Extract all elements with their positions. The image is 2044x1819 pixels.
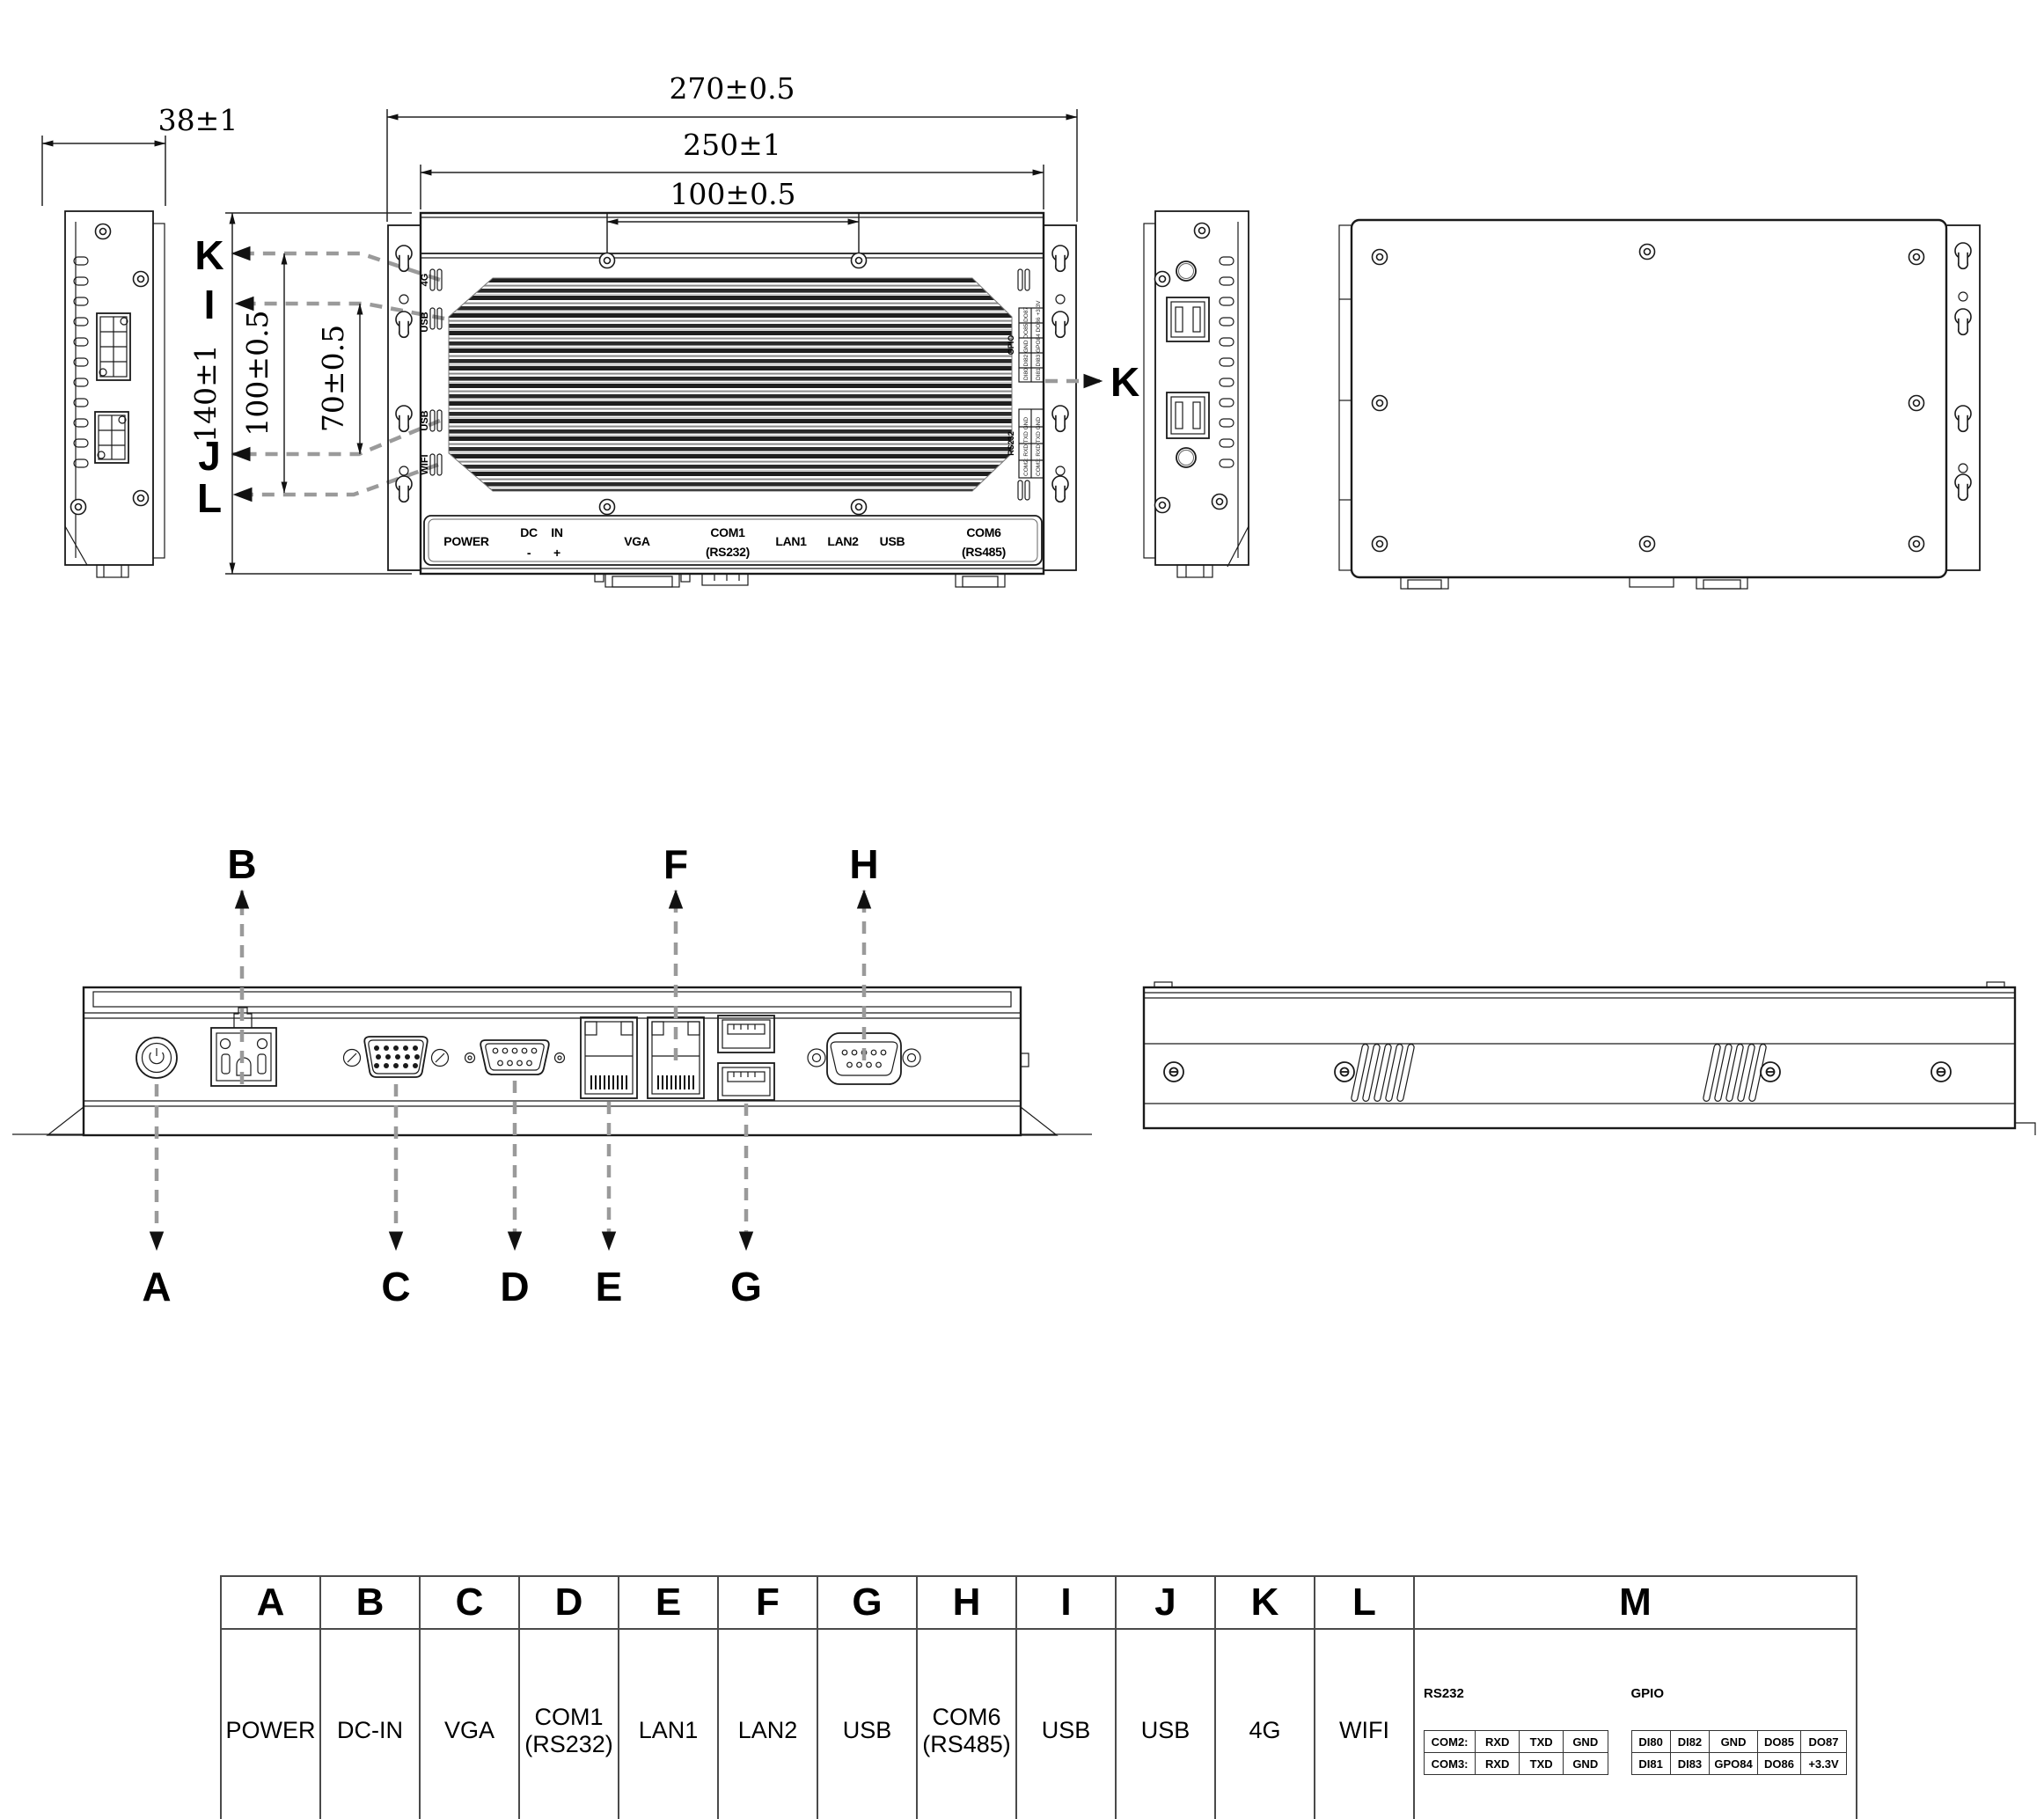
antenna-hole-icon	[1176, 261, 1196, 281]
dim-250-label: 250±1	[683, 128, 781, 162]
front-callouts: B F H A C D E G	[142, 841, 878, 1309]
legend-header: B	[320, 1576, 420, 1629]
usb-connector-side-2	[1167, 392, 1209, 438]
screw-icon	[1335, 1062, 1354, 1082]
mount-foot-left	[48, 1107, 84, 1135]
legend-cell: 4G	[1215, 1629, 1315, 1819]
svg-text:DI81 DI83 GPO84 DO86 +3.3V: DI81 DI83 GPO84 DO86 +3.3V	[1036, 300, 1042, 380]
dim-hole-spacing-inner: 70±0.5	[316, 304, 360, 454]
callout-letter-c: C	[381, 1264, 410, 1309]
side-label-usb2: USB	[420, 410, 430, 430]
dim-side-width: 38±1	[42, 103, 238, 206]
screw-icon	[1373, 537, 1388, 552]
heatsink-fins	[449, 278, 1012, 491]
mount-foot-right	[1021, 1107, 1057, 1135]
dim-100-left-label: 100±0.5	[240, 310, 275, 436]
screw-icon	[1164, 1062, 1183, 1082]
screw-icon	[134, 491, 149, 506]
svg-text:GPIO: GPIO	[1007, 335, 1015, 356]
svg-text:DI80 DI82 GND DO85 DO87: DI80 DI82 GND DO85 DO87	[1023, 307, 1029, 380]
legend-cell: DC-IN	[320, 1629, 420, 1819]
legend-header: F	[718, 1576, 817, 1629]
legend-cell: LAN1	[619, 1629, 718, 1819]
front-view: B F H A C D E G	[12, 841, 1092, 1309]
power-button	[136, 1038, 177, 1078]
callout-letter-k: K	[194, 232, 223, 278]
legend-header-m: M	[1414, 1576, 1857, 1629]
rs232-pinout-table: COM2: RXD TXD GND COM3: RXD TXD GND	[1424, 1730, 1608, 1775]
legend-header: E	[619, 1576, 718, 1629]
screw-icon	[1640, 537, 1655, 552]
vga-connector	[344, 1037, 449, 1077]
legend-cell: POWER	[221, 1629, 320, 1819]
callout-letter-e: E	[596, 1264, 623, 1309]
dim-38-label: 38±1	[158, 103, 238, 137]
dim-hole-spacing-left: 100±0.5	[240, 253, 284, 493]
screw-icon	[1909, 537, 1924, 552]
callout-k-right: K	[1045, 359, 1139, 405]
usb-stack-connector	[718, 1016, 774, 1100]
callout-letter-f: F	[663, 841, 688, 887]
lan1-rj45-connector	[581, 1017, 637, 1098]
screw-icon	[1155, 498, 1170, 513]
legend-cell: WIFI	[1315, 1629, 1414, 1819]
dim-140-label: 140±1	[188, 344, 223, 443]
legend-header: K	[1215, 1576, 1315, 1629]
dim-100-top-label: 100±0.5	[670, 177, 795, 211]
callout-letter-l: L	[197, 475, 222, 521]
strip-label-plus: +	[553, 546, 560, 560]
svg-text:RS232: RS232	[1007, 431, 1015, 456]
vent-grille-left	[1351, 1044, 1415, 1102]
screw-icon	[96, 224, 111, 239]
screw-icon	[1931, 1062, 1951, 1082]
screw-hole-icon	[852, 500, 867, 515]
rs232-title: RS232	[1424, 1686, 1608, 1701]
keyhole-slots-bottom-view-bracket	[1955, 243, 1971, 500]
strip-label-vga: VGA	[624, 534, 650, 548]
side-label-usb1: USB	[420, 312, 430, 332]
callout-letter-k-right: K	[1110, 359, 1139, 405]
legend-cell: USB	[817, 1629, 917, 1819]
legend-header: C	[420, 1576, 519, 1629]
side-label-4g: 4G	[420, 274, 430, 287]
strip-label-com6-sub: (RS485)	[962, 545, 1006, 559]
vent-slots-right-side	[1220, 257, 1234, 467]
strip-label-com1-sub: (RS232)	[706, 545, 750, 559]
rs232-pinout-block: RS232 COM2: RXD TXD GND COM3: RXD	[1424, 1659, 1608, 1802]
legend-cell: USB	[1016, 1629, 1116, 1819]
gpio-title: GPIO	[1631, 1686, 1848, 1701]
strip-label-power: POWER	[443, 534, 489, 548]
keyhole-slots-right-bracket	[1052, 246, 1068, 502]
side-label-wifi: WIFI	[420, 454, 430, 474]
terminal-block-2	[95, 412, 128, 463]
keyhole-slots-left-bracket	[396, 246, 412, 502]
screw-icon	[1909, 250, 1924, 265]
engineering-drawing-page: 38±1 K I J L 140±1 100±0.5 70±0.5	[0, 0, 2044, 1819]
legend-header: L	[1315, 1576, 1414, 1629]
bottom-view	[1339, 220, 1980, 589]
legend-cell-m: RS232 COM2: RXD TXD GND COM3: RXD	[1414, 1629, 1857, 1819]
left-side-view	[65, 211, 165, 577]
svg-text:COM3: RXD TXD GND: COM3: RXD TXD GND	[1036, 417, 1042, 476]
legend-body-row: POWER DC-IN VGA COM1 (RS232) LAN1 LAN2 U…	[221, 1629, 1857, 1819]
bottom-view-connector-stubs	[1401, 577, 1747, 589]
top-view: 4G USB USB WIFI GPIO DI80 DI82 GND DO85 …	[388, 213, 1076, 587]
legend-cell: VGA	[420, 1629, 519, 1819]
antenna-hole-icon	[1176, 448, 1196, 467]
bottom-connector-stubs	[595, 574, 1005, 587]
strip-label-usb: USB	[880, 534, 905, 548]
strip-label-lan1: LAN1	[775, 534, 807, 548]
rear-view	[1144, 982, 2035, 1135]
callout-letter-d: D	[500, 1264, 529, 1309]
legend-header: J	[1116, 1576, 1215, 1629]
legend-cell: COM6 (RS485)	[917, 1629, 1016, 1819]
svg-text:COM2: RXD TXD GND: COM2: RXD TXD GND	[1023, 417, 1029, 476]
strip-label-com6: COM6	[966, 525, 1001, 539]
usb-connector-side-1	[1167, 297, 1209, 341]
drawing-canvas: 38±1 K I J L 140±1 100±0.5 70±0.5	[0, 0, 2044, 1819]
callout-letter-h: H	[849, 841, 878, 887]
dim-270-label: 270±0.5	[669, 71, 795, 106]
legend-header: G	[817, 1576, 917, 1629]
strip-label-minus: -	[527, 546, 531, 560]
legend-table: A B C D E F G H I J K L M POWER DC-IN VG…	[220, 1575, 1857, 1819]
legend-cell: LAN2	[718, 1629, 817, 1819]
legend-cell: COM1 (RS232)	[519, 1629, 619, 1819]
screw-icon	[134, 272, 149, 287]
screw-icon	[1909, 396, 1924, 411]
side-latch-nub	[1021, 1053, 1029, 1067]
terminal-block-1	[97, 313, 130, 380]
port-label-strip: POWER DC IN - + VGA COM1 (RS232) LAN1 LA…	[424, 516, 1042, 565]
gpio-pinout-block: GPIO DI80 DI82 GND DO85 DO87 DI81	[1631, 1659, 1848, 1802]
legend-header-row: A B C D E F G H I J K L M	[221, 1576, 1857, 1629]
strip-label-dc: DC	[520, 525, 538, 539]
screw-hole-icon	[600, 500, 615, 515]
screw-icon	[1155, 272, 1170, 287]
screw-hole-icon	[600, 253, 615, 268]
screw-icon	[71, 500, 86, 515]
strip-label-in: IN	[551, 525, 563, 539]
legend-cell: USB	[1116, 1629, 1215, 1819]
screw-hole-icon	[852, 253, 867, 268]
screw-icon	[1195, 224, 1210, 238]
screw-icon	[1761, 1062, 1780, 1082]
callout-letter-a: A	[142, 1264, 171, 1309]
legend-header: I	[1016, 1576, 1116, 1629]
screw-icon	[1640, 245, 1655, 260]
dim-hole-spacing-top: 100±0.5	[607, 177, 859, 253]
screw-icon	[1373, 396, 1388, 411]
screw-icon	[1373, 250, 1388, 265]
strip-label-com1: COM1	[710, 525, 745, 539]
strip-label-lan2: LAN2	[827, 534, 859, 548]
vent-grille-right	[1703, 1044, 1767, 1102]
legend-header: H	[917, 1576, 1016, 1629]
com1-db9-connector	[465, 1040, 565, 1075]
right-side-view	[1144, 211, 1249, 577]
legend-header: D	[519, 1576, 619, 1629]
callout-letter-i: I	[204, 282, 216, 327]
screw-icon	[1212, 495, 1227, 510]
dim-70-label: 70±0.5	[316, 325, 350, 432]
callout-letter-b: B	[227, 841, 256, 887]
callout-letter-g: G	[730, 1264, 762, 1309]
legend-header: A	[221, 1576, 320, 1629]
gpio-pinout-table: DI80 DI82 GND DO85 DO87 DI81 DI83 GPO84 …	[1631, 1730, 1848, 1775]
